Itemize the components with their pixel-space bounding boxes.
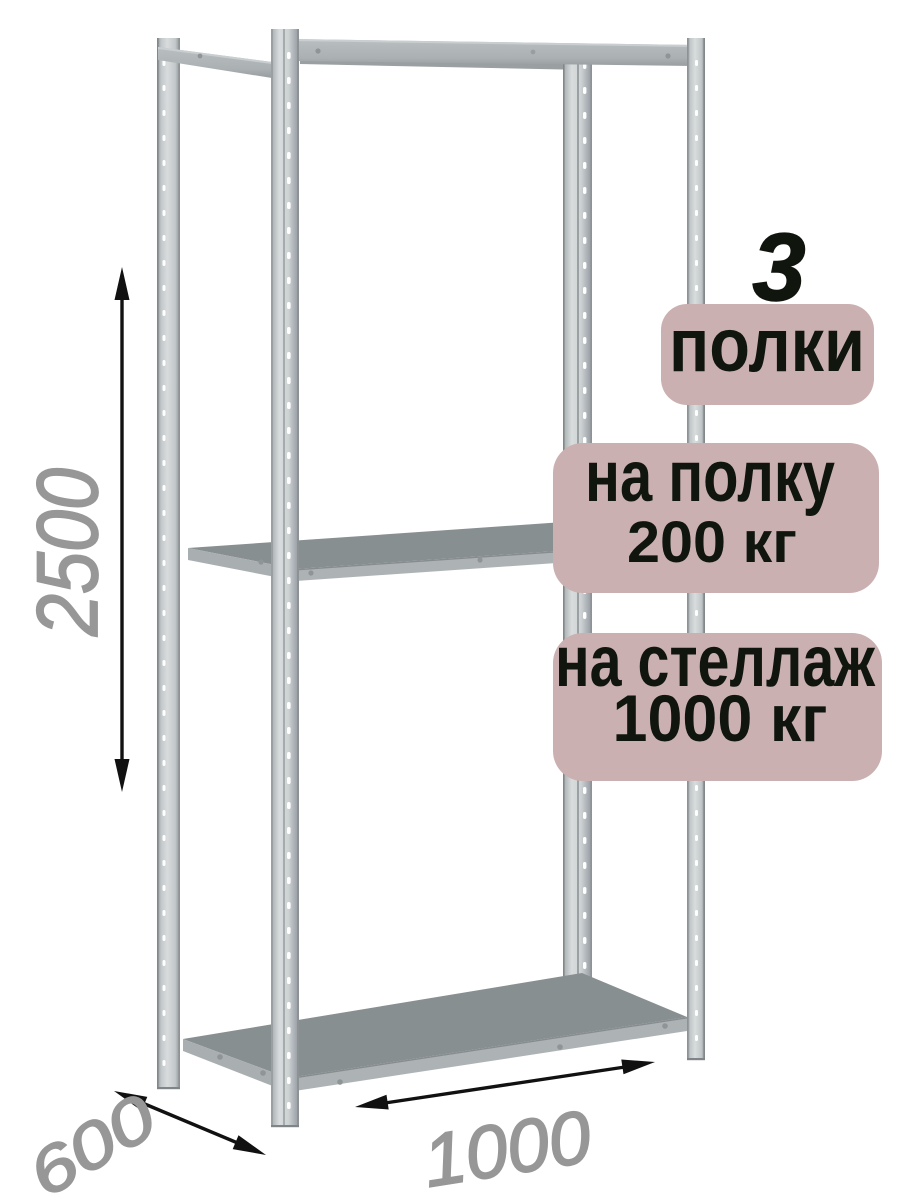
svg-text:полки: полки xyxy=(669,303,865,388)
svg-text:200 кг: 200 кг xyxy=(627,510,797,575)
svg-text:на полку: на полку xyxy=(585,437,835,517)
svg-text:1000 кг: 1000 кг xyxy=(613,681,828,755)
svg-text:2500: 2500 xyxy=(20,468,116,637)
